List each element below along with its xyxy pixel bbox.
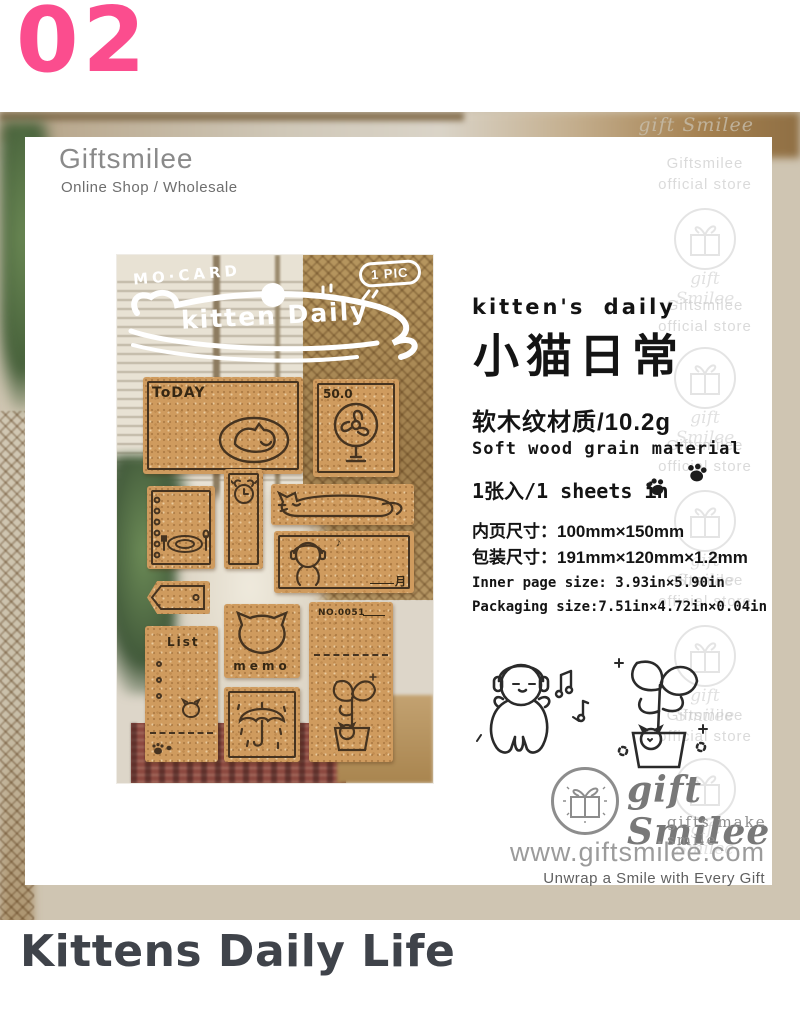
brand-logo xyxy=(551,767,619,835)
tear-line xyxy=(150,732,213,734)
potted-plant-cat-icon xyxy=(603,655,713,773)
paw-print-icon xyxy=(151,742,173,756)
material-en: Soft wood grain material xyxy=(472,439,742,459)
month-line xyxy=(370,583,394,584)
headphone-cat-icon xyxy=(473,657,593,767)
page-index-number: 02 xyxy=(16,0,149,93)
memo-label: memo xyxy=(233,659,290,673)
photo-watermark-script: gift Smilee xyxy=(638,114,754,136)
headphone-cat-icon xyxy=(282,537,334,589)
watermark-line2: official store xyxy=(658,176,752,193)
paw-print-icon xyxy=(645,462,713,498)
plate-and-cutlery-icon xyxy=(149,492,213,564)
cork-card-ticket: NO.0051 xyxy=(309,602,393,762)
store-name: Giftsmilee xyxy=(59,143,193,175)
product-photo: MO·CARD kitten Daily 1 PIC ToDAY 50.0 xyxy=(117,255,433,783)
cork-card-memo: memo xyxy=(224,604,300,678)
cork-card-headphone-cat: ♪ 月 xyxy=(274,531,414,593)
lying-cat-icon xyxy=(275,488,410,521)
ticket-number-label: NO.0051 xyxy=(318,608,365,618)
sleeping-cat-icon xyxy=(215,412,293,466)
alarm-clock-icon xyxy=(231,477,257,507)
dancing-cat-drawing xyxy=(473,657,593,767)
paw-prints-icon xyxy=(645,462,713,498)
watermark-logo: gift Smilee xyxy=(663,203,747,309)
cork-card-notebook xyxy=(147,486,215,569)
product-title-en: kitten's daily xyxy=(472,295,676,319)
page-title: Kittens Daily Life xyxy=(20,926,455,977)
music-note-glyph: ♪ xyxy=(336,537,342,549)
cork-card-umbrella xyxy=(224,687,300,762)
cork-card-clock xyxy=(224,469,263,569)
store-subtitle: Online Shop / Wholesale xyxy=(61,179,238,196)
cork-card-today: ToDAY xyxy=(143,377,303,474)
cork-card-lying-cat xyxy=(271,484,414,525)
watermark-line1: Giftsmilee xyxy=(667,297,744,314)
ticket-write-line xyxy=(363,615,385,616)
tag-outline-icon xyxy=(149,583,208,612)
cork-card-tag xyxy=(147,581,210,614)
inner-size-zh: 内页尺寸：100mm×150mm xyxy=(472,517,684,542)
photo-badge: 1 PIC xyxy=(359,259,422,288)
gift-box-icon xyxy=(669,203,741,275)
material-zh: 软木纹材质/10.2g xyxy=(472,402,671,437)
quantity-line: 1张入/1 sheets in xyxy=(472,475,669,504)
bg-shelf xyxy=(0,112,464,121)
website-url: www.giftsmilee.com xyxy=(325,837,765,868)
list-label: List xyxy=(167,635,200,649)
fan-icon xyxy=(327,399,385,469)
potted-plant-cat-icon xyxy=(323,670,381,754)
today-label: ToDAY xyxy=(152,385,206,401)
month-label: 月 xyxy=(395,573,406,589)
tear-line xyxy=(314,654,388,656)
product-title-zh: 小猫日常 xyxy=(473,320,685,386)
cork-card-list: List xyxy=(145,626,218,762)
content-panel: Giftsmilee Online Shop / Wholesale Gifts… xyxy=(25,137,772,885)
website-slogan: Unwrap a Smile with Every Gift xyxy=(325,870,765,887)
umbrella-icon xyxy=(234,695,290,753)
watermark-text: Giftsmilee official store xyxy=(640,153,770,195)
potted-plant-drawing xyxy=(603,655,713,773)
cat-head-outline-icon xyxy=(232,609,292,659)
package-size-en: Packaging size:7.51in×4.72in×0.04in xyxy=(472,599,767,615)
gift-box-icon xyxy=(563,779,607,823)
list-dots-and-cat-icon xyxy=(153,656,211,726)
cork-card-fan: 50.0 xyxy=(313,379,399,477)
watermark-line1: Giftsmilee xyxy=(667,155,744,172)
inner-size-en: Inner page size: 3.93in×5.90in xyxy=(472,575,725,591)
package-size-zh: 包装尺寸：191mm×120mm×1.2mm xyxy=(472,543,748,568)
